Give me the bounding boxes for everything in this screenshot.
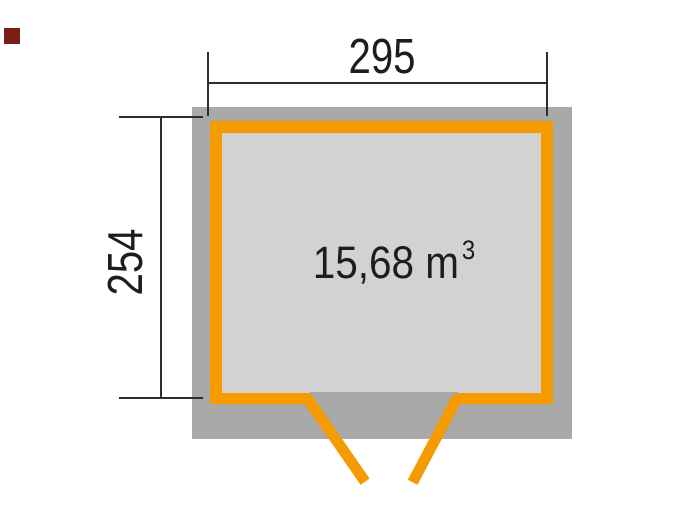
area-label: 15,68 m3 [295, 234, 493, 290]
depth-extension-line-bottom [119, 397, 203, 399]
depth-extension-line-top [119, 116, 203, 118]
area-exponent: 3 [462, 237, 476, 264]
width-dimension-tick-right [546, 52, 548, 116]
width-dimension-label: 295 [325, 33, 440, 81]
brand-mark [4, 28, 20, 44]
depth-dimension-line [160, 117, 162, 398]
depth-dimension-label: 254 [102, 205, 150, 320]
width-dimension-tick-left [207, 52, 209, 116]
door-opening [310, 392, 458, 405]
area-value: 15,68 m [313, 240, 459, 285]
